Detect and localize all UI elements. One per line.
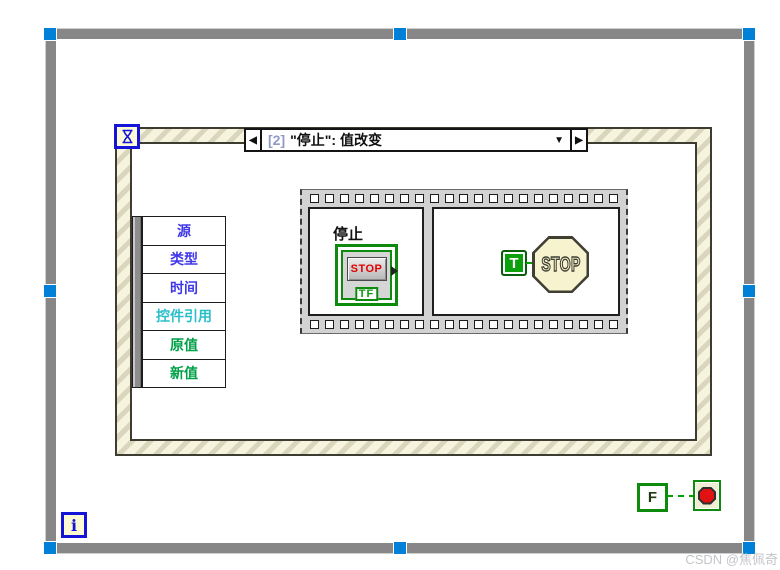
sprocket-square xyxy=(534,320,543,329)
event-data-item-source[interactable]: 源 xyxy=(143,217,225,246)
event-case-selector: ◀ [2] "停止": 值改变 ▼ ▶ xyxy=(244,128,588,152)
terminal-output-arrow-icon xyxy=(391,266,398,276)
sprocket-square xyxy=(474,320,483,329)
sprocket-square xyxy=(519,194,528,203)
sprocket-square xyxy=(340,320,349,329)
sequence-sprocket-row-top xyxy=(302,190,626,207)
sprocket-square xyxy=(355,320,364,329)
sprocket-square xyxy=(504,194,513,203)
case-selector-label[interactable]: [2] "停止": 值改变 ▼ xyxy=(262,130,570,150)
stop-button-terminal[interactable]: STOP TF xyxy=(335,244,398,306)
sprocket-square xyxy=(310,194,319,203)
event-data-node[interactable]: 源 类型 时间 控件引用 原值 新值 xyxy=(132,216,226,388)
sprocket-square xyxy=(355,194,364,203)
sprocket-square xyxy=(594,194,603,203)
sprocket-square xyxy=(430,194,439,203)
false-constant[interactable]: F xyxy=(637,483,668,512)
sprocket-square xyxy=(489,320,498,329)
stop-button-graphic: STOP xyxy=(347,257,387,281)
sprocket-square xyxy=(400,194,409,203)
sprocket-square xyxy=(400,320,409,329)
sprocket-square xyxy=(385,320,394,329)
selection-handle-bottom-left[interactable] xyxy=(44,542,56,554)
stop-octagon-icon xyxy=(698,487,716,505)
sequence-sprocket-row-bottom xyxy=(302,316,626,333)
selection-handle-bottom-middle[interactable] xyxy=(394,542,406,554)
sprocket-square xyxy=(310,320,319,329)
selection-handle-top-left[interactable] xyxy=(44,28,56,40)
event-data-item-ctlref[interactable]: 控件引用 xyxy=(143,303,225,332)
true-constant[interactable]: T xyxy=(501,250,527,276)
sprocket-square xyxy=(474,194,483,203)
event-data-item-type[interactable]: 类型 xyxy=(143,246,225,275)
sprocket-square xyxy=(370,194,379,203)
sprocket-square xyxy=(459,320,468,329)
stop-terminal-label[interactable]: 停止 xyxy=(333,223,363,244)
sprocket-square xyxy=(445,320,454,329)
event-timeout-terminal[interactable] xyxy=(114,124,140,149)
selection-handle-top-middle[interactable] xyxy=(394,28,406,40)
event-data-node-spine xyxy=(132,216,142,388)
sprocket-square xyxy=(579,320,588,329)
event-data-item-newval[interactable]: 新值 xyxy=(143,360,225,388)
sprocket-square xyxy=(549,194,558,203)
sprocket-square xyxy=(445,194,454,203)
hourglass-icon xyxy=(121,129,134,144)
sprocket-square xyxy=(340,194,349,203)
sprocket-square xyxy=(519,320,528,329)
block-diagram-canvas: ◀ [2] "停止": 值改变 ▼ ▶ 源 类型 时间 控件引用 原值 新值 停… xyxy=(0,0,780,570)
sprocket-square xyxy=(385,194,394,203)
event-data-item-oldval[interactable]: 原值 xyxy=(143,331,225,360)
sprocket-square xyxy=(325,194,334,203)
sprocket-square xyxy=(430,320,439,329)
boolean-type-badge: TF xyxy=(355,287,378,301)
stop-sign[interactable]: STOP xyxy=(532,236,589,293)
event-data-node-items: 源 类型 时间 控件引用 原值 新值 xyxy=(142,216,226,388)
sprocket-square xyxy=(415,194,424,203)
iteration-terminal[interactable]: i xyxy=(61,512,87,538)
sprocket-square xyxy=(564,320,573,329)
sprocket-square xyxy=(370,320,379,329)
sprocket-square xyxy=(564,194,573,203)
sprocket-square xyxy=(325,320,334,329)
watermark: CSDN @焦佩奇 xyxy=(685,549,778,568)
stop-sign-face: STOP xyxy=(535,239,587,291)
selection-handle-middle-right[interactable] xyxy=(743,285,755,297)
sprocket-square xyxy=(415,320,424,329)
loop-condition-terminal[interactable] xyxy=(693,480,721,511)
stop-sign-text: STOP xyxy=(541,253,580,277)
sprocket-square xyxy=(549,320,558,329)
sprocket-square xyxy=(504,320,513,329)
selection-handle-top-right[interactable] xyxy=(743,28,755,40)
case-title: "停止": 值改变 xyxy=(290,130,382,150)
sprocket-square xyxy=(594,320,603,329)
previous-case-button[interactable]: ◀ xyxy=(246,130,262,150)
case-dropdown-icon[interactable]: ▼ xyxy=(554,135,564,146)
boolean-wire xyxy=(667,495,695,497)
sprocket-square xyxy=(609,320,618,329)
sprocket-square xyxy=(534,194,543,203)
event-data-item-time[interactable]: 时间 xyxy=(143,274,225,303)
sprocket-square xyxy=(489,194,498,203)
selection-handle-middle-left[interactable] xyxy=(44,285,56,297)
sprocket-square xyxy=(579,194,588,203)
stop-button-terminal-inner: STOP TF xyxy=(341,250,392,300)
sprocket-square xyxy=(609,194,618,203)
next-case-button[interactable]: ▶ xyxy=(570,130,586,150)
sprocket-square xyxy=(459,194,468,203)
case-index: [2] xyxy=(268,132,285,148)
